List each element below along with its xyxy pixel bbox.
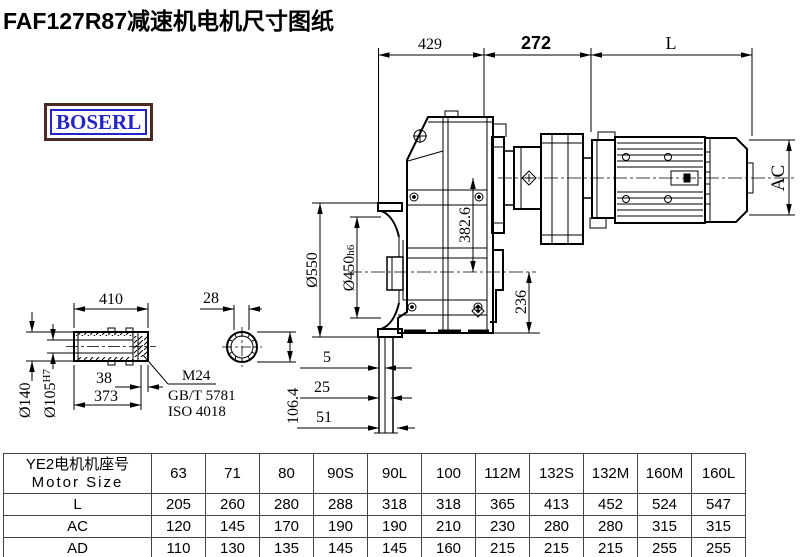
col-132S: 132S (530, 454, 584, 494)
cell-AC-112M: 230 (476, 516, 530, 538)
dim-5: 5 (323, 349, 331, 366)
motor (590, 132, 753, 228)
cell-AC-80: 170 (260, 516, 314, 538)
col-80: 80 (260, 454, 314, 494)
cell-AD-112M: 215 (476, 538, 530, 557)
dim-phi105: Ø105H7 (41, 368, 59, 418)
fan-cowl (705, 138, 753, 222)
mount-face-dims (297, 368, 415, 428)
cell-AD-132M: 215 (584, 538, 638, 557)
cell-AD-80: 135 (260, 538, 314, 557)
motor-size-table: YE2电机机座号 Motor Size 63 71 80 90S 90L 100… (3, 453, 746, 557)
row-label-L: L (4, 494, 152, 516)
cell-AC-132S: 280 (530, 516, 584, 538)
cell-L-71: 260 (206, 494, 260, 516)
dim-L: L (666, 33, 677, 53)
label-gb5781: GB/T 5781 (168, 388, 236, 404)
cell-L-80: 280 (260, 494, 314, 516)
table-row-AC: AC 120 145 170 190 190 210 230 280 280 3… (4, 516, 746, 538)
cell-L-90L: 318 (368, 494, 422, 516)
cell-AC-100: 210 (422, 516, 476, 538)
table-row-AD: AD 110 130 135 145 145 160 215 215 215 2… (4, 538, 746, 557)
dim-28: 28 (203, 290, 219, 307)
dim-phi450: Ø450h6 (341, 244, 358, 291)
col-160L: 160L (692, 454, 746, 494)
cell-AC-90L: 190 (368, 516, 422, 538)
cell-AD-160L: 255 (692, 538, 746, 557)
cell-AC-90S: 190 (314, 516, 368, 538)
dim-38: 38 (96, 370, 112, 387)
dim-236: 236 (513, 290, 530, 314)
dim-429: 429 (418, 36, 442, 53)
header-cn: YE2电机机座号 (4, 456, 151, 474)
col-132M: 132M (584, 454, 638, 494)
dimension-drawing: 429 272 L (0, 0, 800, 455)
table-header-row: YE2电机机座号 Motor Size 63 71 80 90S 90L 100… (4, 454, 746, 494)
cell-L-90S: 288 (314, 494, 368, 516)
cell-L-160M: 524 (638, 494, 692, 516)
dim-AC: AC (768, 165, 789, 191)
dim-373: 373 (94, 388, 118, 405)
cell-AD-90L: 145 (368, 538, 422, 557)
col-100: 100 (422, 454, 476, 494)
header-en: Motor Size (4, 474, 151, 492)
shaft-section-view (222, 327, 262, 367)
cell-AD-63: 110 (152, 538, 206, 557)
dim-382-6: 382.6 (457, 207, 474, 243)
cell-AD-160M: 255 (638, 538, 692, 557)
cell-AD-132S: 215 (530, 538, 584, 557)
col-112M: 112M (476, 454, 530, 494)
col-71: 71 (206, 454, 260, 494)
cell-L-132S: 413 (530, 494, 584, 516)
dim-25: 25 (314, 379, 330, 396)
col-90L: 90L (368, 454, 422, 494)
label-iso4018: ISO 4018 (168, 404, 226, 420)
col-63: 63 (152, 454, 206, 494)
cell-L-160L: 547 (692, 494, 746, 516)
cell-L-132M: 452 (584, 494, 638, 516)
dim-phi140: Ø140 (17, 382, 34, 418)
cell-L-63: 205 (152, 494, 206, 516)
eyebolt-icon (413, 129, 427, 143)
cell-AD-90S: 145 (314, 538, 368, 557)
cell-L-100: 318 (422, 494, 476, 516)
cell-AC-71: 145 (206, 516, 260, 538)
dim-272: 272 (521, 33, 551, 53)
top-dimension-chain (379, 48, 753, 202)
gearbox-housing (398, 111, 506, 333)
row-label-AD: AD (4, 538, 152, 557)
cell-AD-71: 130 (206, 538, 260, 557)
cell-AC-160M: 315 (638, 516, 692, 538)
col-160M: 160M (638, 454, 692, 494)
table-row-L: L 205 260 280 288 318 318 365 413 452 52… (4, 494, 746, 516)
dim-51: 51 (316, 409, 332, 426)
cell-AC-63: 120 (152, 516, 206, 538)
cell-L-112M: 365 (476, 494, 530, 516)
cell-AC-160L: 315 (692, 516, 746, 538)
row-label-AC: AC (4, 516, 152, 538)
motor-adapter (492, 134, 592, 244)
dim-410: 410 (99, 291, 123, 308)
label-m24: M24 (182, 368, 211, 384)
cell-AD-100: 160 (422, 538, 476, 557)
cell-AC-132M: 280 (584, 516, 638, 538)
header-motor-size: YE2电机机座号 Motor Size (4, 454, 152, 494)
col-90S: 90S (314, 454, 368, 494)
drawing-page: FAF127R87减速机电机尺寸图纸 BOSERL 429 272 L (0, 0, 800, 557)
hollow-shaft-detail (66, 328, 156, 365)
dim-106-4: 106.4 (285, 388, 302, 424)
dim-phi550: Ø550 (304, 252, 321, 288)
